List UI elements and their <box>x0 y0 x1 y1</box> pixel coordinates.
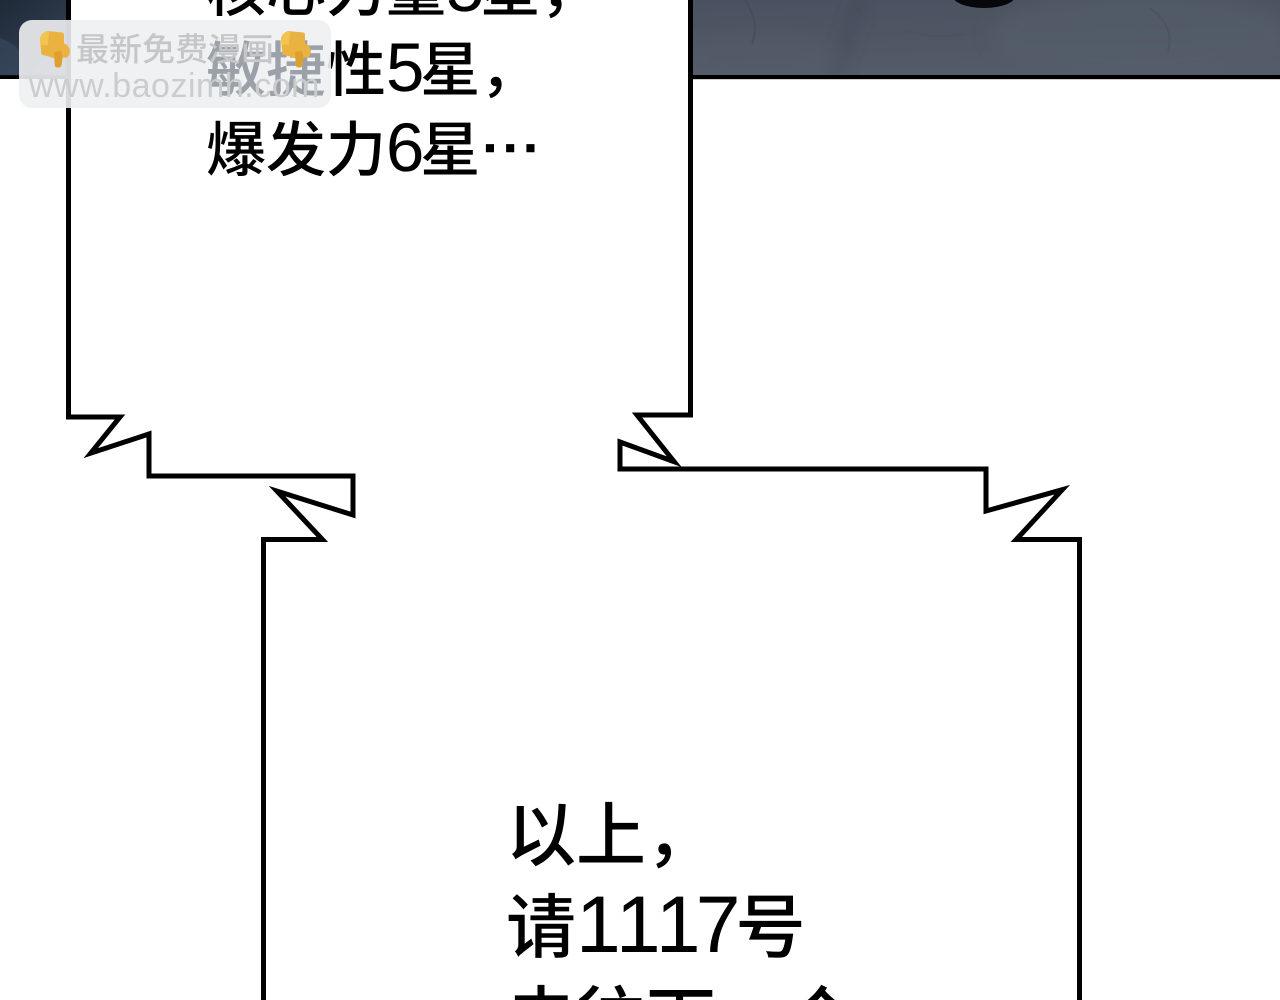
svg-text:www.baozimh.com: www.baozimh.com <box>28 67 320 105</box>
